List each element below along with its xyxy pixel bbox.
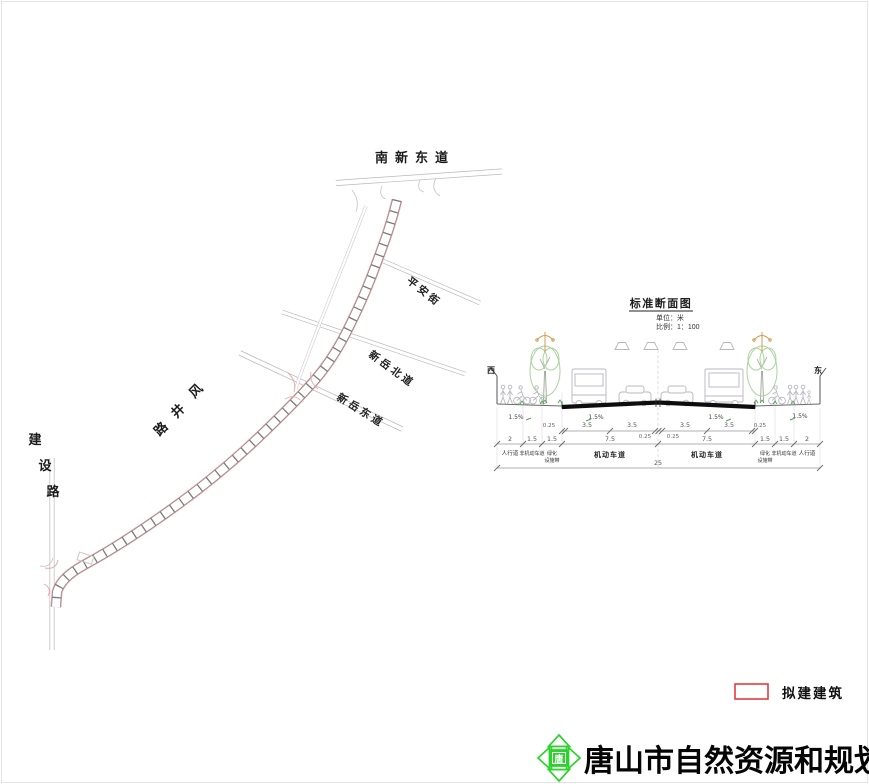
svg-text:25: 25 bbox=[654, 460, 662, 467]
west-post: 西 bbox=[487, 366, 497, 404]
section-title: 标准断面图 bbox=[629, 296, 693, 310]
svg-text:3.5: 3.5 bbox=[627, 422, 637, 429]
label-jianshe: 建 设 路 bbox=[28, 432, 60, 499]
legend-label: 拟建建筑 bbox=[782, 685, 844, 701]
svg-text:0.25: 0.25 bbox=[639, 434, 652, 440]
agency-name: 唐山市自然资源和规划局 bbox=[584, 744, 869, 778]
section-unit: 单位：米 bbox=[656, 313, 684, 322]
svg-text:建: 建 bbox=[28, 432, 41, 447]
cross-section: 标准断面图 单位：米 比例：1：100 bbox=[487, 296, 826, 471]
svg-text:机动车道: 机动车道 bbox=[594, 450, 626, 459]
svg-text:风: 风 bbox=[186, 381, 206, 401]
truck-figure bbox=[705, 369, 743, 407]
svg-text:路: 路 bbox=[151, 418, 172, 439]
svg-text:0.25: 0.25 bbox=[543, 423, 556, 429]
svg-text:设施带: 设施带 bbox=[544, 457, 559, 464]
svg-text:1.5: 1.5 bbox=[547, 436, 557, 443]
drawing-canvas: 南新东道 平安街 新岳北道 新岳东道 风 井 路 建 设 路 标准断面图 单位：… bbox=[0, 0, 869, 784]
legend: 拟建建筑 bbox=[735, 684, 844, 701]
svg-text:3.5: 3.5 bbox=[680, 422, 690, 429]
drawing-sheet: 南新东道 平安街 新岳北道 新岳东道 风 井 路 建 设 路 标准断面图 单位：… bbox=[0, 0, 869, 784]
proposed-building-swatch bbox=[735, 684, 768, 699]
street-xinyue-north-line bbox=[282, 312, 465, 374]
dim-row-total: 25 bbox=[494, 460, 823, 471]
svg-text:1.5%: 1.5% bbox=[588, 414, 604, 421]
svg-text:绿化: 绿化 bbox=[760, 450, 770, 457]
footer: 唐 唐山市自然资源和规划局 bbox=[538, 735, 869, 781]
svg-text:2: 2 bbox=[805, 436, 809, 443]
west-label: 西 bbox=[487, 366, 495, 375]
lane-symbols bbox=[615, 343, 734, 350]
svg-text:1.5%: 1.5% bbox=[508, 414, 524, 421]
svg-text:井: 井 bbox=[168, 401, 188, 421]
svg-text:0.25: 0.25 bbox=[754, 423, 767, 429]
tree-left-figure bbox=[530, 332, 560, 403]
label-xinyue-east: 新岳东道 bbox=[334, 391, 387, 431]
label-fengjing: 风 井 路 bbox=[151, 381, 206, 439]
logo-character: 唐 bbox=[554, 753, 563, 764]
agency-logo: 唐 bbox=[538, 735, 580, 781]
east-post: 东 bbox=[814, 365, 826, 404]
svg-text:1.5%: 1.5% bbox=[792, 413, 808, 420]
dim-row-zones: 2 1.5 1.5 7.5 7.5 1.5 1.5 2 bbox=[494, 436, 823, 447]
svg-text:3.5: 3.5 bbox=[582, 422, 592, 429]
svg-text:人行道: 人行道 bbox=[502, 449, 519, 457]
east-label: 东 bbox=[814, 365, 822, 375]
bus-figure bbox=[572, 369, 606, 407]
street-nanxindong-line bbox=[336, 172, 502, 184]
svg-text:0.25: 0.25 bbox=[667, 434, 680, 440]
svg-text:3.5: 3.5 bbox=[724, 422, 734, 429]
section-scale: 比例：1：100 bbox=[656, 322, 700, 331]
svg-text:1.5: 1.5 bbox=[779, 436, 789, 443]
svg-text:机动车道: 机动车道 bbox=[691, 450, 723, 459]
svg-text:1.5: 1.5 bbox=[760, 436, 770, 443]
dim-row-lanes: 0.25 3.5 3.5 0.25 0.25 3.5 3.5 0.25 bbox=[543, 422, 767, 440]
svg-text:7.5: 7.5 bbox=[605, 436, 615, 443]
svg-text:1.5%: 1.5% bbox=[708, 414, 724, 421]
svg-text:绿化: 绿化 bbox=[547, 450, 557, 457]
svg-text:非机动车道: 非机动车道 bbox=[771, 450, 796, 457]
svg-text:7.5: 7.5 bbox=[702, 436, 712, 443]
svg-text:设施带: 设施带 bbox=[757, 457, 772, 464]
svg-text:1.5: 1.5 bbox=[527, 436, 537, 443]
tree-right-figure bbox=[747, 332, 777, 403]
svg-text:非机动车道: 非机动车道 bbox=[519, 450, 544, 457]
road-plan: 南新东道 平安街 新岳北道 新岳东道 风 井 路 建 设 路 bbox=[28, 150, 502, 650]
svg-text:路: 路 bbox=[46, 484, 60, 499]
label-nanxindong: 南新东道 bbox=[375, 150, 455, 165]
svg-text:2: 2 bbox=[508, 436, 512, 443]
svg-text:人行道: 人行道 bbox=[799, 449, 816, 457]
svg-text:设: 设 bbox=[38, 458, 52, 473]
